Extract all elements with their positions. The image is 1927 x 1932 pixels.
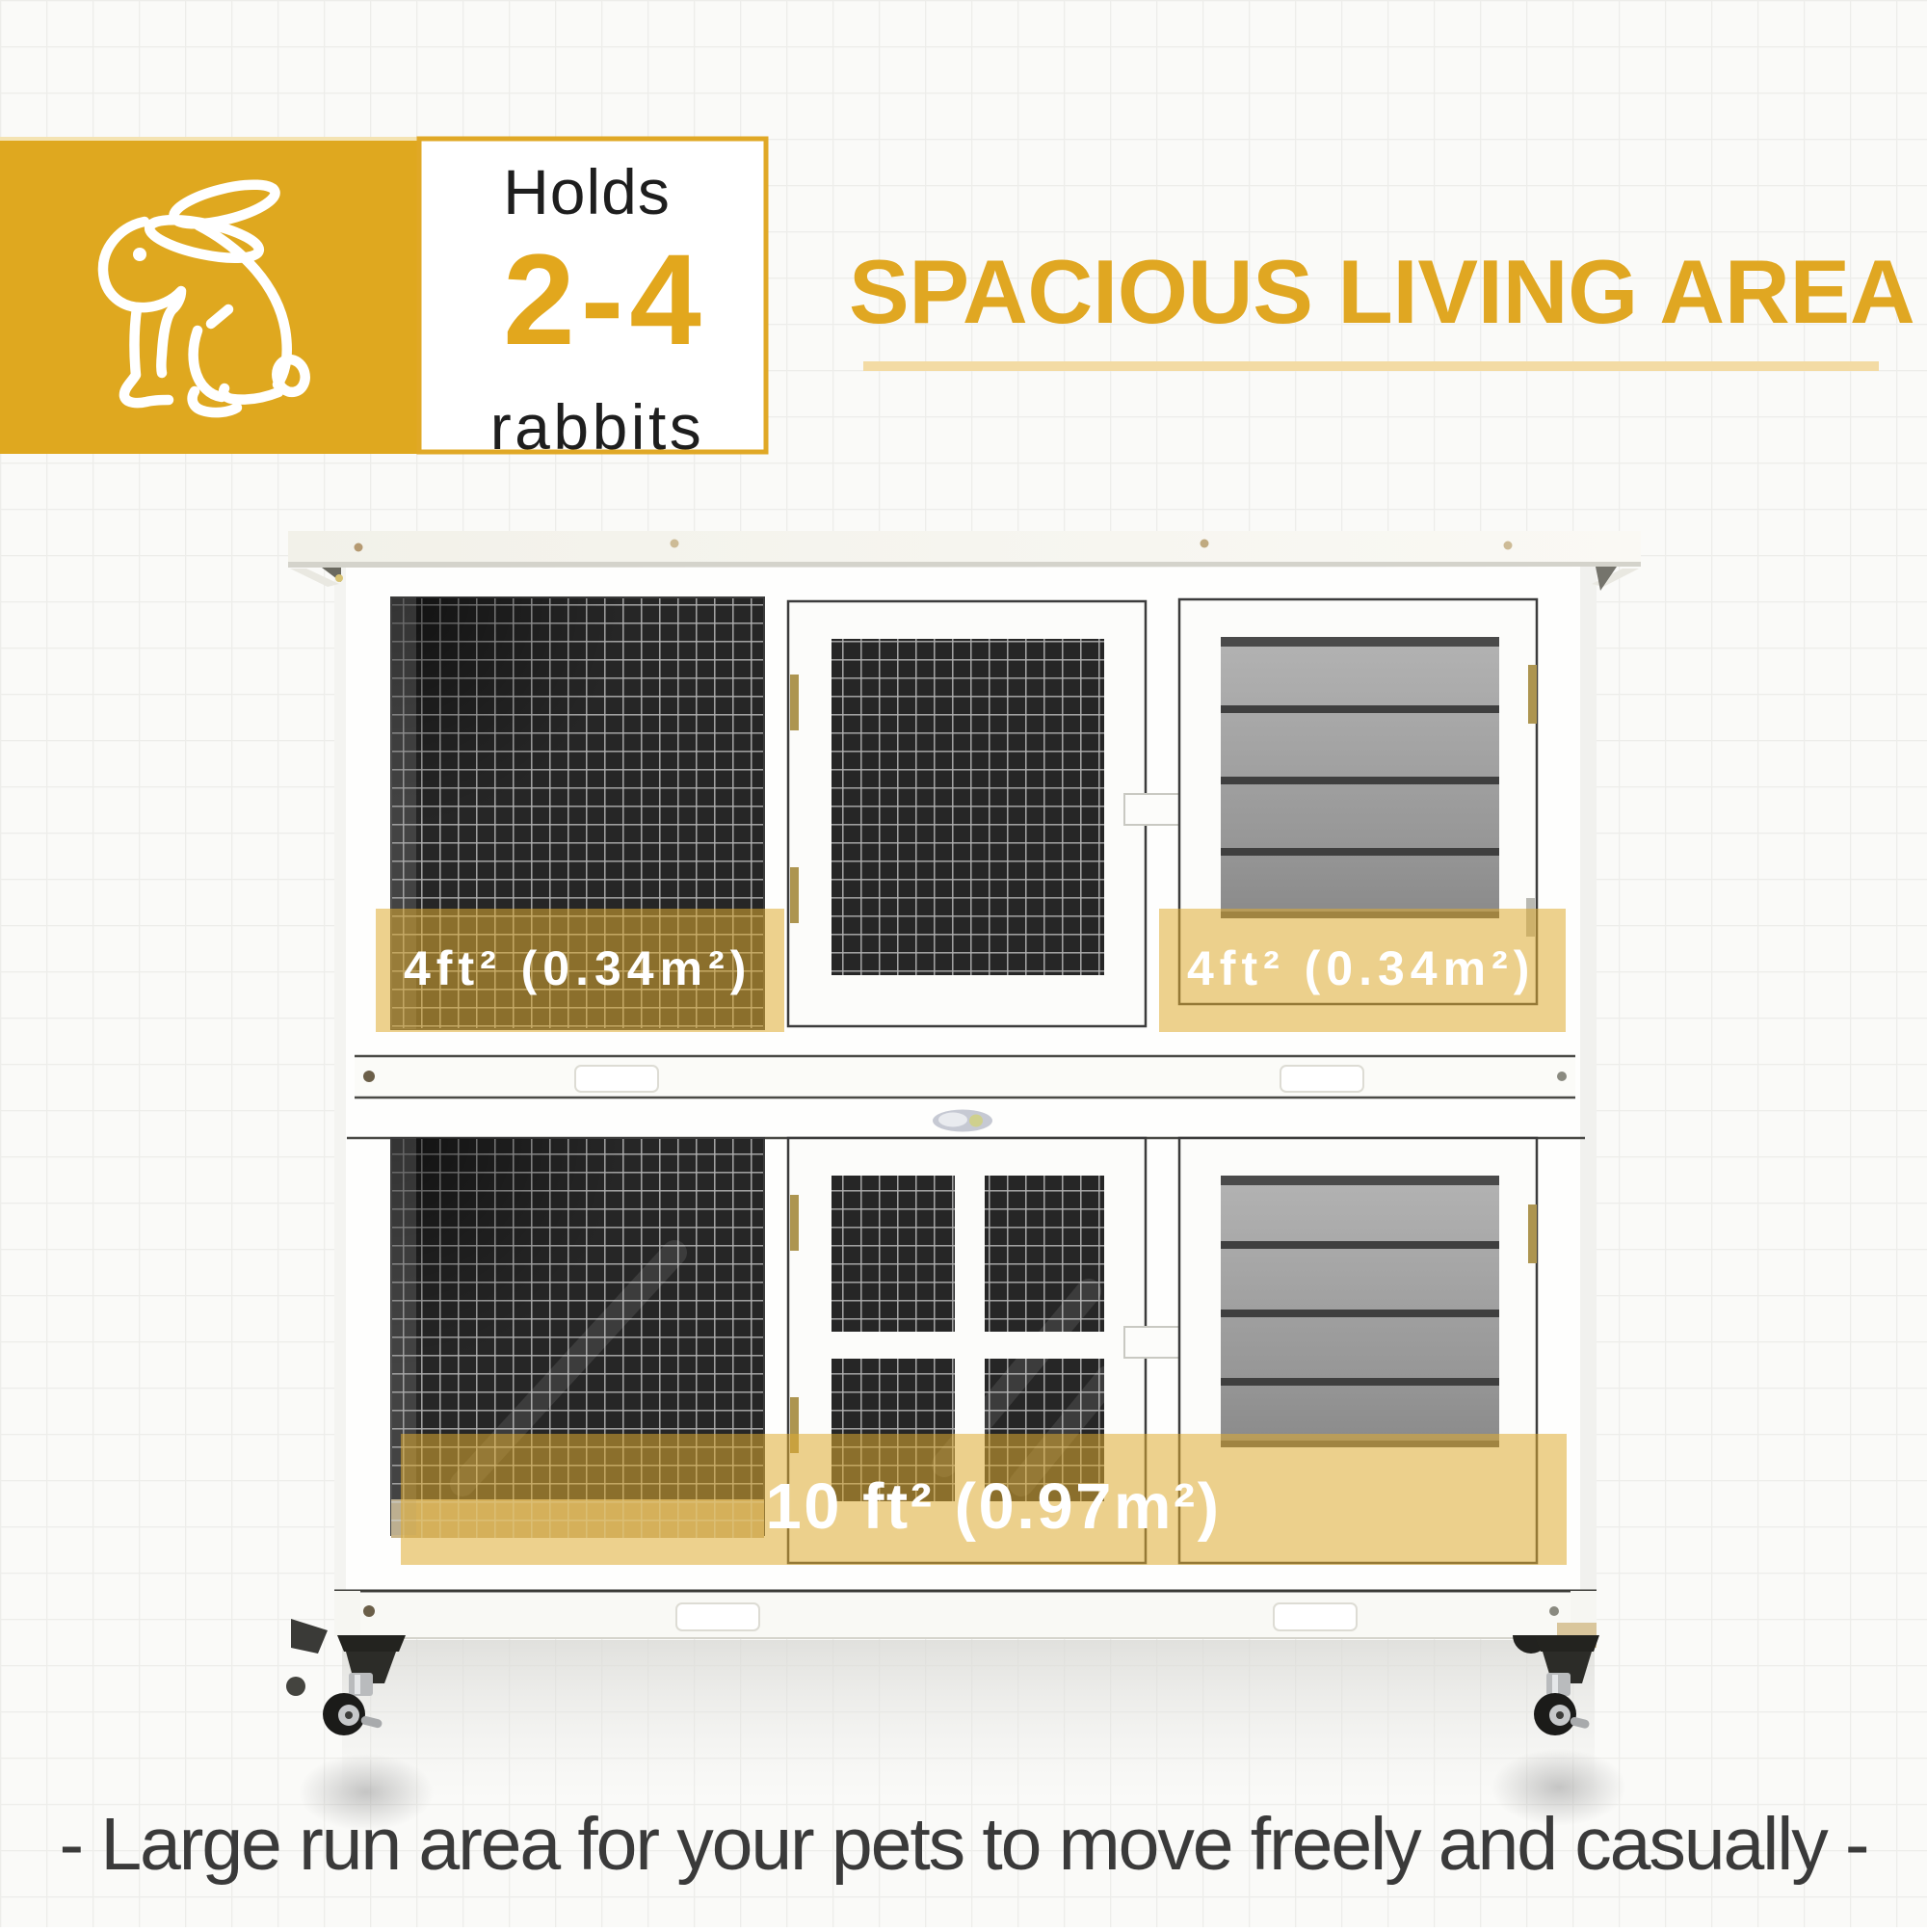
svg-text:4ft² (0.34m²): 4ft² (0.34m²) [404,941,752,995]
svg-text:Holds: Holds [503,156,671,227]
svg-text:rabbits: rabbits [490,391,705,463]
svg-text:2-4: 2-4 [503,228,707,372]
svg-text:10 ft² (0.97m²): 10 ft² (0.97m²) [765,1470,1221,1543]
svg-text:4ft² (0.34m²): 4ft² (0.34m²) [1187,941,1535,995]
svg-text:- Large run area for your pets: - Large run area for your pets to move f… [60,1803,1868,1886]
svg-text:SPACIOUS LIVING AREA: SPACIOUS LIVING AREA [849,241,1914,342]
